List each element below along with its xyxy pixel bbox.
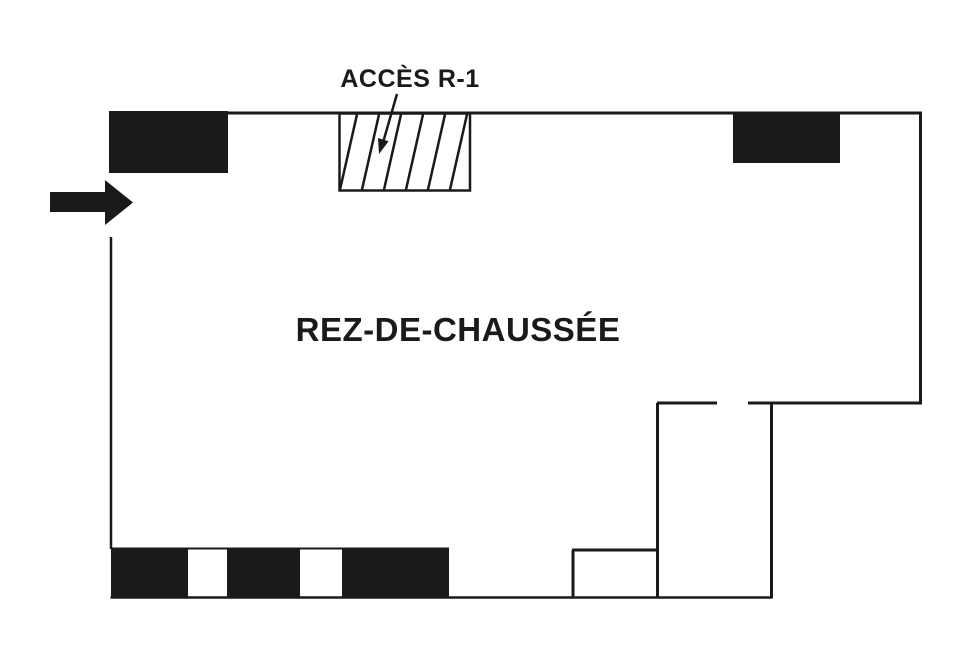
access-label: ACCÈS R-1	[340, 64, 479, 93]
floor-plan-canvas: ACCÈS R-1 REZ-DE-CHAUSSÉE	[0, 0, 958, 648]
access-hatch-lines	[317, 110, 490, 194]
outer-walls	[110, 113, 922, 598]
bottom-band-segment	[111, 548, 188, 598]
bottom-band-segment	[342, 548, 448, 598]
floor-plan-drawing: ACCÈS R-1 REZ-DE-CHAUSSÉE	[0, 0, 958, 648]
entrance-arrow-icon	[50, 180, 133, 225]
access-hatch-area	[317, 110, 490, 194]
inner-room	[657, 403, 772, 598]
small-room	[572, 550, 658, 597]
top-left-wall-block	[109, 111, 228, 173]
floor-label: REZ-DE-CHAUSSÉE	[296, 311, 621, 348]
access-hatch-outline	[340, 114, 471, 191]
bottom-band-segment	[227, 548, 300, 598]
bottom-wall-band	[111, 548, 448, 598]
top-right-wall-block	[733, 112, 840, 163]
